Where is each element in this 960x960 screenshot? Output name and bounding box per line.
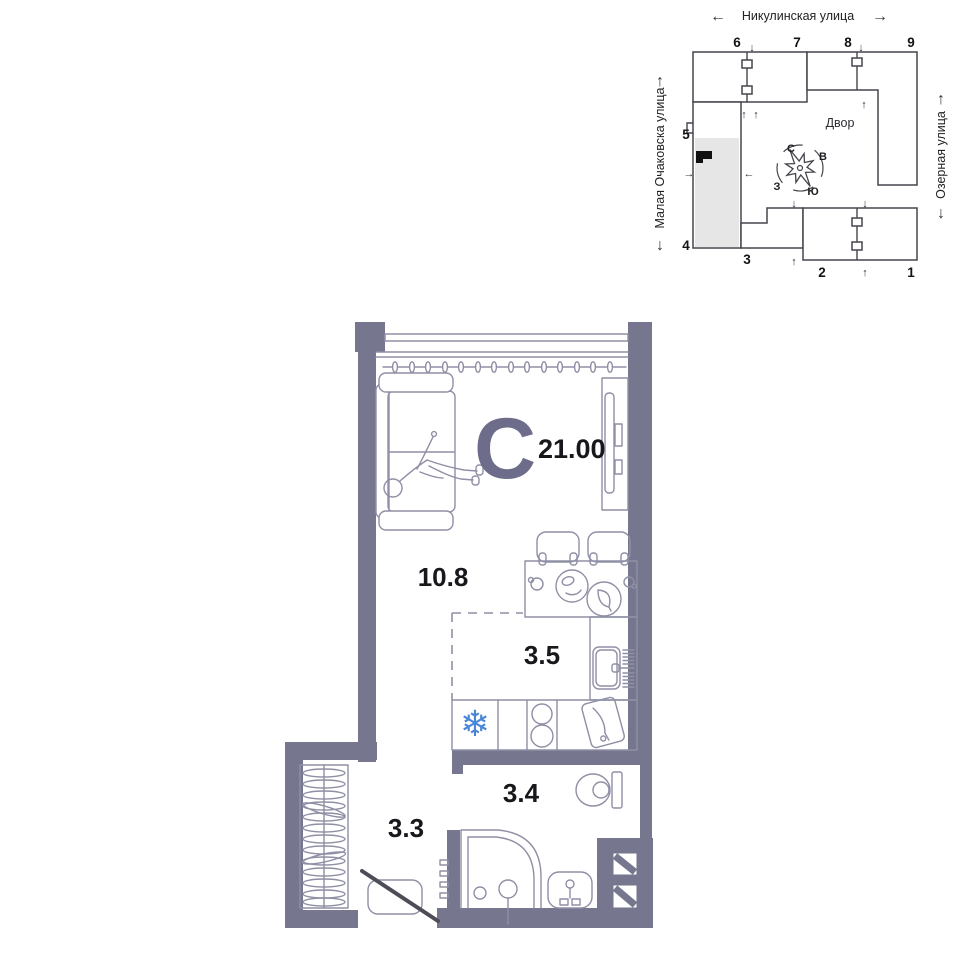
person-hand [432,432,437,437]
divider-notch [852,218,862,226]
kitchen-sink-basin [596,650,617,686]
arrow-left-icon: ← [744,168,755,180]
building-number-2: 2 [818,265,826,280]
kitchen-counter-bottom: ❄ [452,696,637,750]
arrow-west-icon: ← [710,8,726,25]
wall [447,830,460,910]
tv-console [602,378,628,510]
wall [355,322,385,352]
person-on-sofa [384,432,483,497]
arrow-up-icon: ↑ [656,73,664,90]
bathroom-sink [548,872,592,908]
arrow-down-icon: ↓ [862,198,868,210]
building-number-7: 7 [793,35,801,50]
sofa-armrest [379,511,453,530]
compass-center [798,166,803,171]
building-number-1: 1 [907,265,915,280]
compass-west-label: З [774,181,781,193]
arrow-up-icon: ↑ [753,109,759,121]
building-1-2-block [803,208,917,260]
fridge-snowflake-icon: ❄ [460,703,490,744]
floor-plan: ❄ [285,322,653,928]
food [561,575,575,587]
compass-east-label: В [819,151,827,163]
balcony-window [376,334,628,357]
arrow-up-icon: ↑ [862,267,868,279]
wall [637,838,653,928]
sink-tap [572,899,580,905]
kitchen-area-label: 3.5 [524,640,560,670]
window-glazing [385,334,628,341]
person-head [384,479,402,497]
wardrobe [300,765,348,908]
wall [452,750,463,774]
building-number-5: 5 [682,127,690,142]
tv-mount [615,460,622,474]
building-number-6: 6 [733,35,741,50]
dining-table [525,561,637,617]
plan-svg: Никулинская улица ← → Малая Очаковска ул… [0,0,960,960]
divider-notch [742,86,752,94]
street-right-label: Озерная улица [934,111,948,199]
curtain-rail [383,362,626,372]
shower-head [499,880,517,898]
toilet-inner [593,782,609,798]
person-torso [400,460,427,481]
building-3-block [741,208,803,248]
hallway-area-label: 3.3 [388,813,424,843]
cutting-board [581,696,625,748]
tv-screen [605,393,614,493]
sofa-armrest [379,373,453,392]
food [566,590,581,595]
towel-rail [440,860,448,898]
shower-drain [474,887,486,899]
wall [613,875,637,885]
bathroom-area-label: 3.4 [503,778,540,808]
kitchen-sink [593,647,620,689]
divider-notch [852,58,862,66]
arrow-up-icon: ↑ [937,91,945,108]
wall [285,910,358,928]
compass-north-label: С [787,143,795,155]
arrow-down-icon: ↓ [791,198,797,210]
total-area-label: 21.00 [538,434,606,464]
dining-set [525,532,637,617]
building-number-3: 3 [743,252,751,267]
building-number-8: 8 [844,35,852,50]
faucet-base [612,664,619,672]
sofa-back [376,384,389,518]
apartment-plan-page: Никулинская улица ← → Малая Очаковска ул… [0,0,960,960]
arrow-down-icon: ↓ [937,205,945,222]
street-left-label: Малая Очаковска улица [653,87,667,228]
toilet [576,772,622,808]
arrow-up-icon: ↑ [791,256,797,268]
divider-notch [852,242,862,250]
sink-tap [560,899,568,905]
courtyard-label: Двор [826,116,855,130]
wall [640,765,652,840]
plate [556,570,588,602]
arrow-right-icon: → [684,168,695,180]
person-arm [420,472,443,478]
building-number-4: 4 [682,238,690,253]
building-number-9: 9 [907,35,915,50]
wall [628,322,652,765]
shower-inner [468,837,534,908]
person-arm-raised [417,437,433,469]
stove-burner [532,704,552,724]
toilet-tank [612,772,622,808]
divider-notch [742,60,752,68]
shower-outer [461,830,541,908]
window-sill [376,352,628,357]
plate [587,582,621,616]
chair [588,532,630,565]
wall [358,352,376,762]
compass-south-label: Ю [807,186,818,198]
sink-drain [566,880,574,888]
street-top-label: Никулинская улица [742,9,854,23]
arrow-down-icon: ↓ [656,237,664,254]
arrow-up-icon: ↑ [741,109,747,121]
arrow-up-icon: ↑ [861,99,867,111]
wall [437,908,653,928]
person-leg [429,466,473,480]
chair [537,532,579,565]
arrow-down-icon: ↓ [749,42,755,54]
living-room-area-label: 10.8 [418,562,469,592]
arrow-down-icon: ↓ [858,42,864,54]
stove-burner [531,725,553,747]
tv-mount [615,424,622,446]
food-leaf [598,590,611,611]
compass-rose: С В З Ю [769,137,832,200]
bench [368,880,422,914]
apartment-type-letter: С [474,401,536,497]
arrow-east-icon: → [872,8,888,25]
site-plan: Никулинская улица ← → Малая Очаковска ул… [653,8,948,280]
sofa [376,373,455,530]
wall [452,750,652,765]
